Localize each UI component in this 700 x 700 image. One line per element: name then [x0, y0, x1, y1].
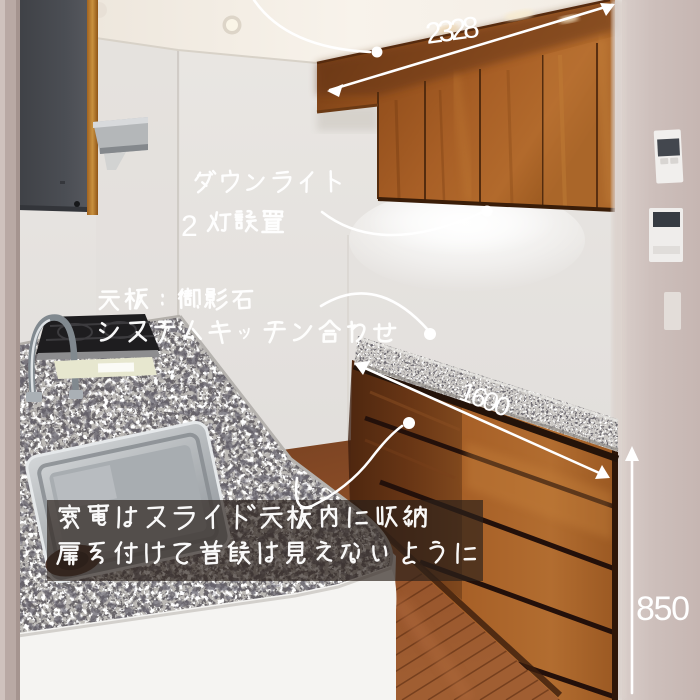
- svg-text:850: 850: [636, 590, 692, 628]
- svg-text:2: 2: [181, 210, 198, 243]
